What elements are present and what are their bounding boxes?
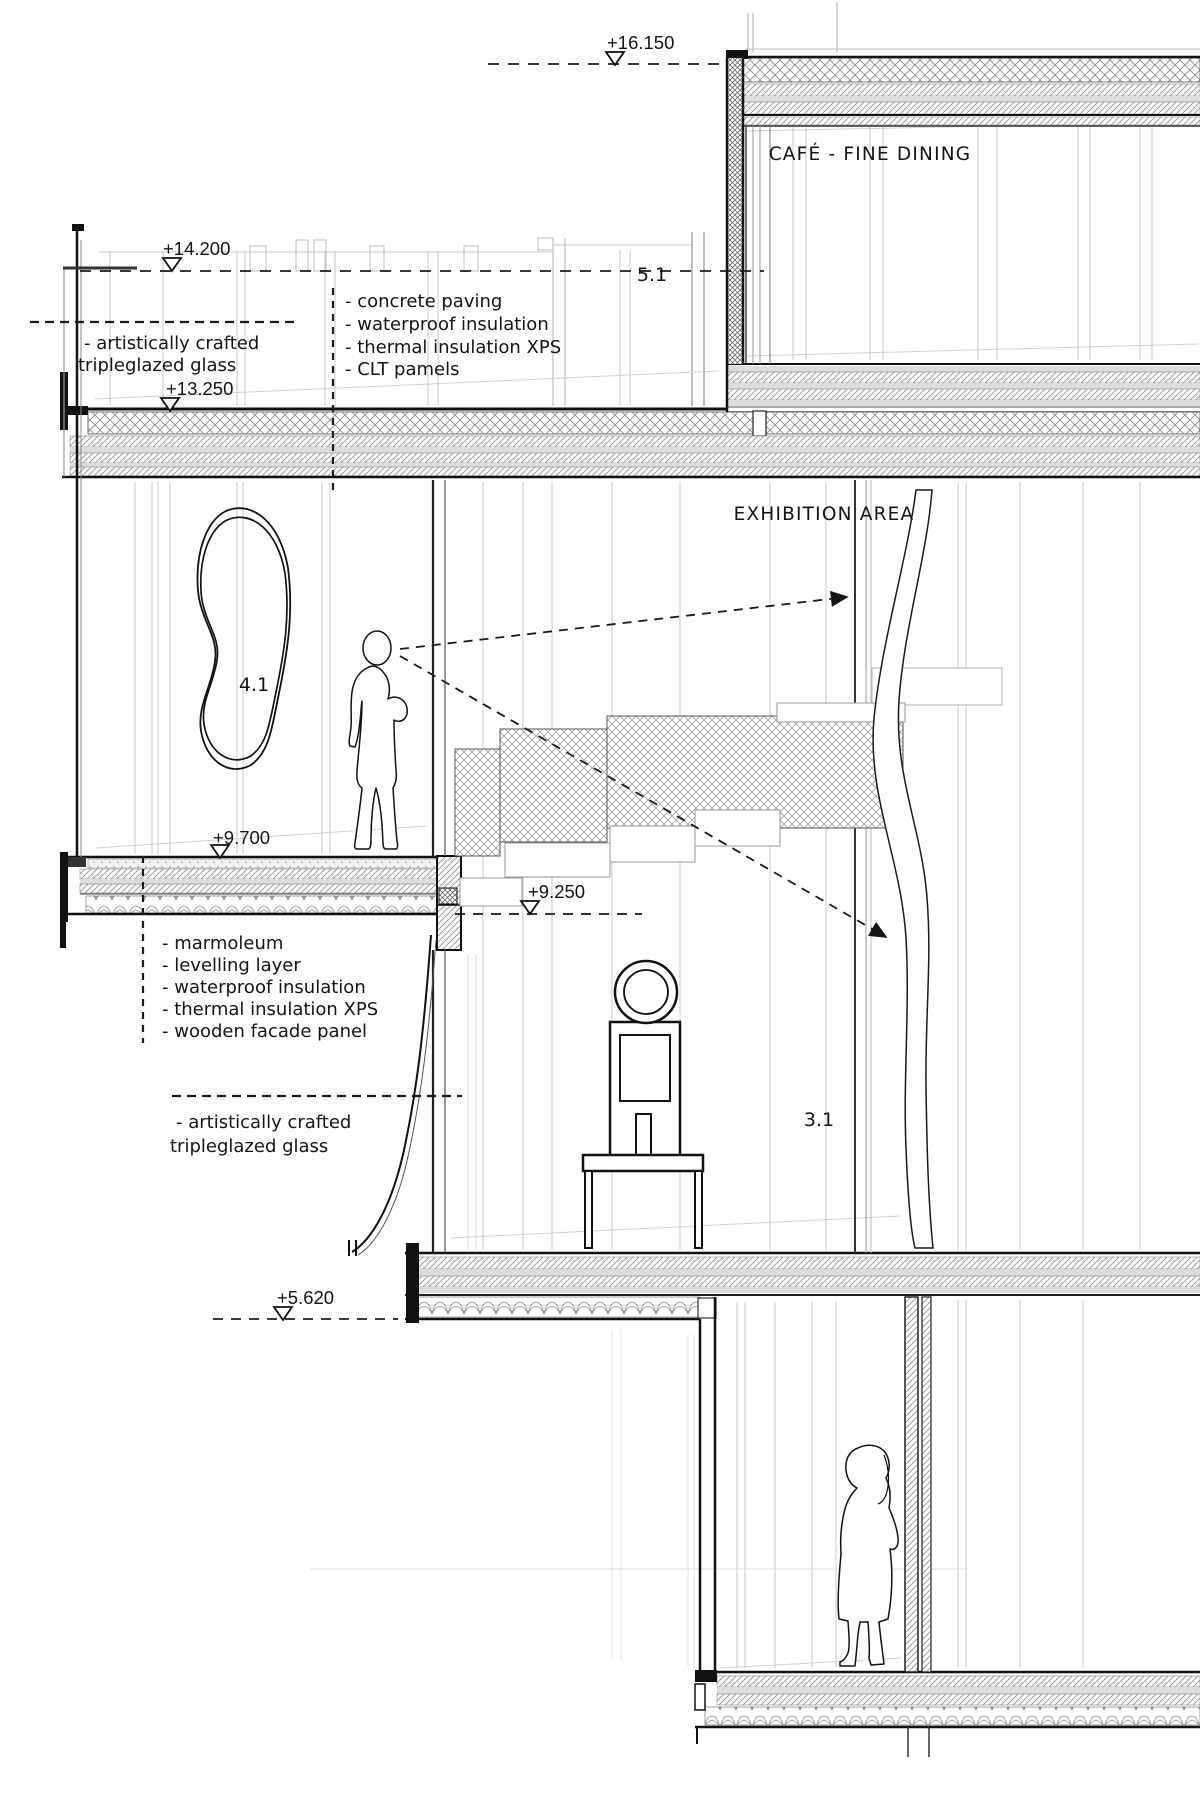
level-text-13250: +13.250	[166, 378, 233, 399]
note-glazing-lower-line-1: tripleglazed glass	[170, 1136, 328, 1157]
exhibition-partition	[855, 480, 871, 1253]
lower-floor-slab	[695, 1670, 1200, 1757]
sight-arrow-1	[400, 597, 847, 649]
note-glazing-upper-line-1: tripleglazed glass	[78, 355, 236, 376]
note-floor-assembly-line-4: - wooden facade panel	[162, 1021, 367, 1042]
cafe-roof-slab	[726, 49, 1200, 126]
level-text-14200: +14.200	[163, 238, 230, 259]
level-triangle-14200	[163, 258, 181, 271]
left-facade-glass	[63, 224, 137, 857]
note-floor-assembly-line-1: - levelling layer	[162, 955, 301, 976]
note-floor-assembly-line-2: - waterproof insulation	[162, 977, 366, 998]
person-figure-lower	[838, 1445, 898, 1666]
room-number-51: 5.1	[637, 264, 667, 286]
note-roof-assembly-line-2: - thermal insulation XPS	[345, 337, 561, 358]
level-text-5620: +5.620	[277, 1287, 334, 1308]
curtain	[873, 490, 933, 1248]
note-roof-assembly-line-0: - concrete paving	[345, 291, 502, 312]
note-floor-assembly-line-3: - thermal insulation XPS	[162, 999, 378, 1020]
level-text-9700: +9.700	[213, 827, 270, 848]
lower-room-walls	[700, 1297, 931, 1672]
level-triangle-16150	[606, 52, 624, 65]
room-number-31: 3.1	[804, 1109, 834, 1131]
artwork-blob	[198, 508, 291, 769]
note-glazing-lower-line-0: - artistically crafted	[176, 1112, 351, 1133]
level-text-9250: +9.250	[528, 881, 585, 902]
room-label-exhibition: EXHIBITION AREA	[734, 504, 915, 525]
note-roof-assembly-line-3: - CLT pamels	[345, 359, 460, 380]
room-label-cafe: CAFÉ - FINE DINING	[769, 143, 972, 165]
level-triangle-9250	[521, 901, 539, 914]
section-drawing: +16.150 +14.200 +13.250 +9.700 +9.250 +5…	[0, 0, 1200, 1793]
level-triangle-5620	[274, 1307, 292, 1320]
cafe-floor-slab	[727, 364, 1200, 407]
level-text-16150: +16.150	[607, 32, 674, 53]
person-figure-upper	[349, 631, 407, 849]
sculpture	[583, 961, 703, 1248]
room-number-41: 4.1	[239, 674, 269, 696]
note-floor-assembly-line-0: - marmoleum	[162, 933, 283, 954]
note-roof-assembly-line-1: - waterproof insulation	[345, 314, 549, 335]
note-glazing-upper-line-0: - artistically crafted	[84, 333, 259, 354]
